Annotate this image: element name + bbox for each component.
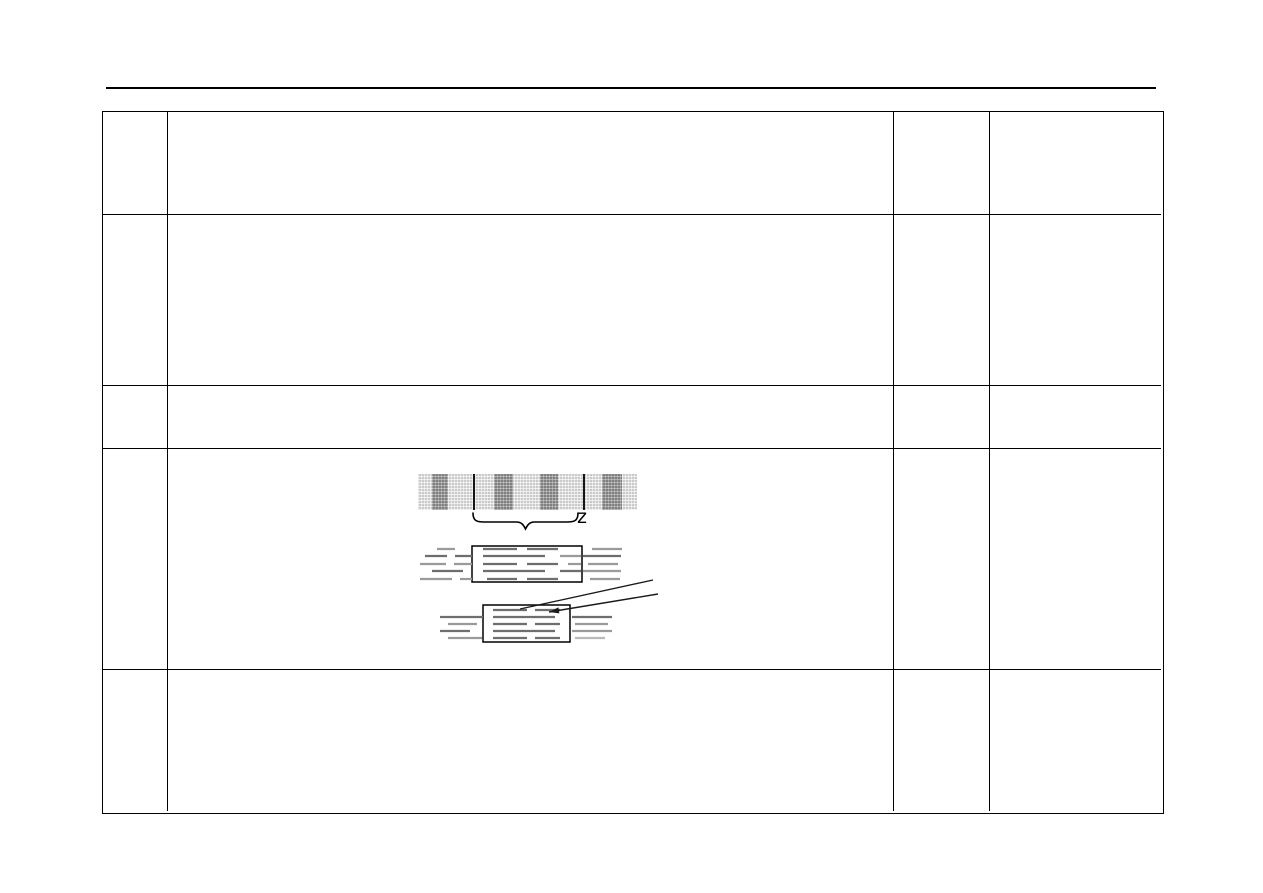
table-cell-r1c4 xyxy=(990,112,1161,215)
table-cell-r5c2 xyxy=(168,670,894,811)
table-cell-r1c1 xyxy=(103,112,168,215)
table-cell-r2c3 xyxy=(894,215,990,386)
table-cell-r4c3 xyxy=(894,449,990,670)
table-cell-r3c4 xyxy=(990,386,1161,449)
header-rule xyxy=(106,87,1156,89)
table-cell-r3c2 xyxy=(168,386,894,449)
document-page: z xyxy=(0,0,1263,893)
table-cell-r5c3 xyxy=(894,670,990,811)
table-cell-r2c2 xyxy=(168,215,894,386)
table-cell-r5c1 xyxy=(103,670,168,811)
table-cell-r1c3 xyxy=(894,112,990,215)
table-cell-r3c3 xyxy=(894,386,990,449)
table-cell-r2c4 xyxy=(990,215,1161,386)
table-cell-r4c4 xyxy=(990,449,1161,670)
table-cell-r2c1 xyxy=(103,215,168,386)
table-cell-r1c2 xyxy=(168,112,894,215)
table-cell-r4c2 xyxy=(168,449,894,670)
table-cell-r4c1 xyxy=(103,449,168,670)
table-cell-r5c4 xyxy=(990,670,1161,811)
document-table xyxy=(102,111,1164,814)
table-cell-r3c1 xyxy=(103,386,168,449)
